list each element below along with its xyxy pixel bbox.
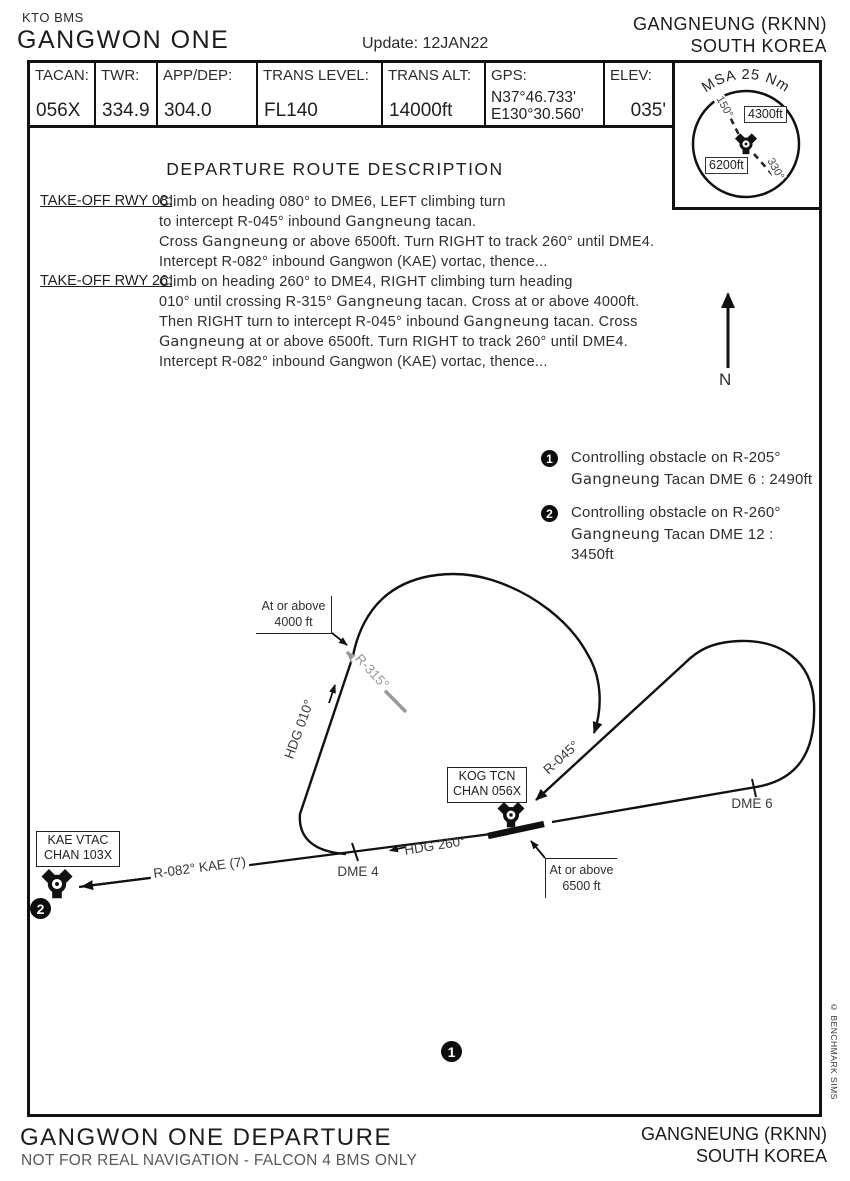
obstacle-1-chart-marker: 1 [441,1041,462,1062]
takeoff-rwy26-label: TAKE-OFF RWY 26: [40,273,172,289]
footer-airport-name: GANGNEUNG (RKNN) [641,1124,827,1145]
takeoff-rwy26-text: Climb on heading 260° to DME4, RIGHT cli… [159,272,639,372]
msa-altitude-low: 6200ft [705,157,748,174]
country-name: SOUTH KOREA [690,36,827,57]
route-description-title: DEPARTURE ROUTE DESCRIPTION [30,159,640,180]
appdep-value: 304.0 [164,100,212,122]
footer-disclaimer: NOT FOR REAL NAVIGATION - FALCON 4 BMS O… [21,1152,417,1170]
cell-appdep: APP/DEP: 304.0 [158,63,258,125]
elev-value: 035' [631,100,666,122]
twr-value: 334.9 [102,100,150,122]
msa-box: MSA 25 Nm 150° 330° 4300ft 6200ft [672,60,822,210]
kog-tacan-box: KOG TCNCHAN 056X [447,767,527,803]
footer-procedure-title: GANGWON ONE DEPARTURE [20,1124,392,1152]
obstacle-note-2-text: Controlling obstacle on R-260°Gangneung … [571,503,781,566]
at-or-above-6500-callout: At or above6500 ft [545,858,617,898]
dme6-label: DME 6 [726,796,778,811]
tacan-label: TACAN: [30,63,94,84]
cell-twr: TWR: 334.9 [96,63,158,125]
credit-text: © BENCHMARK SIMS [829,1002,839,1100]
procedure-title: GANGWON ONE [17,26,229,55]
cell-translevel: TRANS LEVEL: FL140 [258,63,383,125]
svg-text:MSA 25 Nm: MSA 25 Nm [699,67,792,96]
airport-name: GANGNEUNG (RKNN) [633,14,827,35]
north-label: N [719,370,731,390]
msa-bearing-330: 330° [764,155,787,182]
takeoff-rwy08-label: TAKE-OFF RWY 08: [40,193,172,209]
msa-bearing-150: 150° [713,93,736,120]
gps-value: N37°46.733'E130°30.560' [491,90,584,123]
obstacle-note-1-text: Controlling obstacle on R-205°Gangneung … [571,448,812,490]
appdep-label: APP/DEP: [158,63,256,84]
elev-label: ELEV: [605,63,672,84]
at-or-above-4000-callout: At or above4000 ft [256,596,332,634]
gps-label: GPS: [486,63,603,84]
obstacle-note-1-marker: 1 [541,450,558,467]
translevel-value: FL140 [264,100,318,122]
footer-country-name: SOUTH KOREA [696,1146,827,1167]
twr-label: TWR: [96,63,156,84]
msa-diagram: MSA 25 Nm [675,63,819,207]
tacan-value: 056X [36,100,80,122]
cell-tacan: TACAN: 056X [30,63,96,125]
dme4-label: DME 4 [334,864,382,879]
takeoff-rwy08-text: Climb on heading 080° to DME6, LEFT clim… [159,192,654,272]
obstacle-2-chart-marker: 2 [30,898,51,919]
msa-title: MSA 25 Nm [699,67,792,96]
kae-vortac-box: KAE VTACCHAN 103X [36,831,120,867]
chart-series: KTO BMS [22,10,84,25]
obstacle-note-2-marker: 2 [541,505,558,522]
transalt-label: TRANS ALT: [383,63,484,84]
update-date: Update: 12JAN22 [362,35,488,53]
transalt-value: 14000ft [389,100,452,122]
cell-transalt: TRANS ALT: 14000ft [383,63,486,125]
msa-altitude-high: 4300ft [744,106,787,123]
cell-elev: ELEV: 035' [605,63,672,125]
info-strip: TACAN: 056X TWR: 334.9 APP/DEP: 304.0 TR… [27,60,675,128]
translevel-label: TRANS LEVEL: [258,63,381,84]
cell-gps: GPS: N37°46.733'E130°30.560' [486,63,605,125]
